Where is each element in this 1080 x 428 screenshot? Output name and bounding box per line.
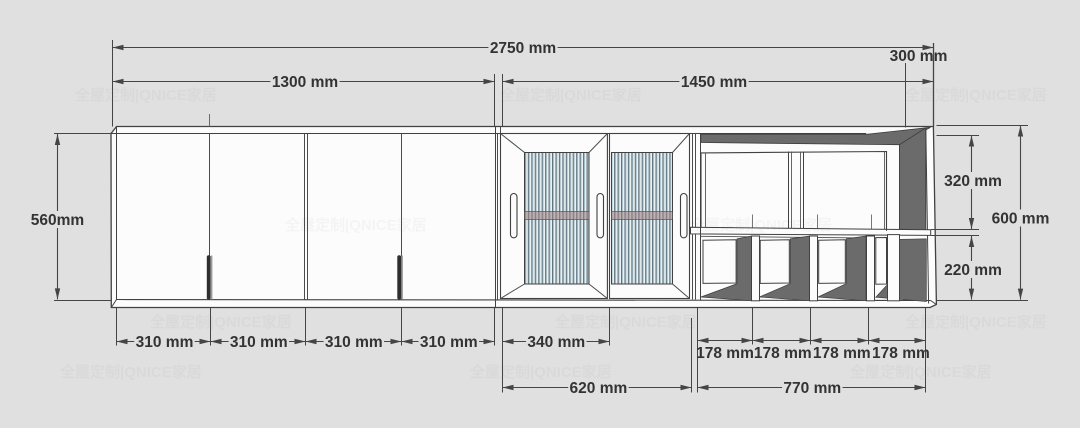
svg-text:全屋定制|QNICE家居: 全屋定制|QNICE家居 (469, 363, 612, 381)
svg-text:310 mm: 310 mm (420, 334, 478, 351)
svg-text:178 mm: 178 mm (872, 345, 930, 362)
svg-text:2750 mm: 2750 mm (490, 40, 556, 57)
svg-text:770 mm: 770 mm (783, 380, 841, 397)
svg-text:1450 mm: 1450 mm (681, 74, 747, 91)
svg-text:全屋定制|QNICE家居: 全屋定制|QNICE家居 (689, 216, 832, 234)
svg-text:560mm: 560mm (31, 212, 84, 229)
svg-text:220 mm: 220 mm (944, 262, 1002, 279)
svg-text:全屋定制|QNICE家居: 全屋定制|QNICE家居 (499, 86, 642, 104)
svg-text:全屋定制|QNICE家居: 全屋定制|QNICE家居 (59, 363, 202, 381)
svg-text:620 mm: 620 mm (570, 380, 628, 397)
svg-text:178 mm: 178 mm (754, 345, 812, 362)
svg-text:全屋定制|QNICE家居: 全屋定制|QNICE家居 (284, 216, 427, 234)
svg-text:340 mm: 340 mm (527, 334, 585, 351)
svg-text:全屋定制|QNICE家居: 全屋定制|QNICE家居 (149, 313, 292, 331)
svg-text:全屋定制|QNICE家居: 全屋定制|QNICE家居 (74, 86, 217, 104)
svg-text:178 mm: 178 mm (696, 345, 754, 362)
svg-text:178 mm: 178 mm (813, 345, 871, 362)
svg-text:310 mm: 310 mm (230, 334, 288, 351)
svg-text:310 mm: 310 mm (136, 334, 194, 351)
svg-text:1300 mm: 1300 mm (272, 74, 338, 91)
svg-text:320 mm: 320 mm (944, 173, 1002, 190)
svg-text:310 mm: 310 mm (325, 334, 383, 351)
svg-text:全屋定制|QNICE家居: 全屋定制|QNICE家居 (554, 313, 697, 331)
svg-text:全屋定制|QNICE家居: 全屋定制|QNICE家居 (904, 86, 1047, 104)
svg-text:300 mm: 300 mm (890, 48, 948, 65)
svg-text:全屋定制|QNICE家居: 全屋定制|QNICE家居 (849, 363, 992, 381)
svg-text:全屋定制|QNICE家居: 全屋定制|QNICE家居 (904, 313, 1047, 331)
svg-text:600 mm: 600 mm (992, 210, 1050, 227)
